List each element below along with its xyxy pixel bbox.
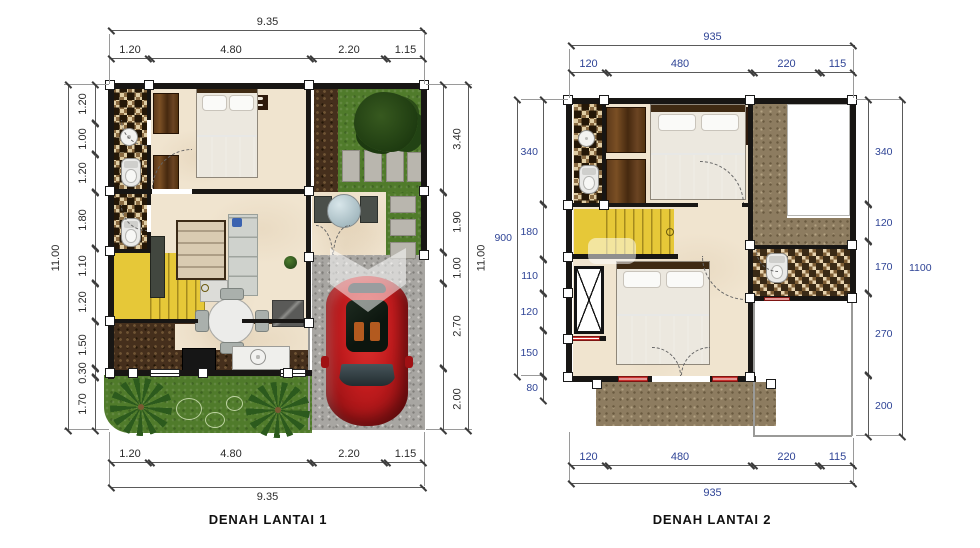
dim-label: 1.90 [451,211,463,232]
dim-label: 120 [520,306,538,318]
dim-segment: 270 [868,293,869,375]
dim-label: 120 [579,58,597,70]
stepping-stone [407,152,422,182]
dim-segment: 150 [543,330,544,376]
dim-label: 120 [579,451,597,463]
extension-line [856,435,901,436]
wall-pillar [563,252,573,262]
stair-pivot [201,284,209,292]
plan-title: DENAH LANTAI 2 [653,512,772,527]
pillow [229,95,254,111]
floorplan-sheet: 9.35 1.20 4.80 2.20 1.15 1.20 4.80 2.20 … [0,0,980,548]
porch-chair [360,196,378,223]
dim-segment: 2.70 [443,283,444,368]
dim-segment: 120 [570,72,607,73]
dim-label: 1.20 [119,448,140,460]
dim-segment: 1.00 [443,252,444,283]
wall [108,83,427,89]
dim-label: 480 [671,451,689,463]
dim-label: 1.10 [77,255,89,276]
wall [850,98,856,302]
wall [748,245,856,249]
dim-segment: 115 [820,465,855,466]
dim-label: 2.20 [338,44,359,56]
wall-pillar [592,379,602,389]
wall [602,203,698,207]
window [764,297,790,301]
wall-pillar [304,318,314,328]
dim-label: 340 [520,146,538,158]
window [618,376,648,382]
dim-segment: 3.40 [443,85,444,192]
dim-label: 2.70 [451,315,463,336]
dim-segment: 1.20 [95,283,96,321]
dim-label: 1.50 [77,334,89,355]
wall-pillar [745,95,755,105]
wall-pillar [563,288,573,298]
wall-pillar [128,368,138,378]
dim-label: 270 [875,328,893,340]
bush [205,412,225,428]
dim-label: 2.20 [338,448,359,460]
watermark [588,238,636,264]
stepping-stone [342,150,360,182]
dim-label: 220 [777,451,795,463]
door-opening [152,189,192,194]
dim-segment: 1.70 [95,377,96,430]
wardrobe [606,159,646,205]
balcony-deck [596,382,776,426]
dim-label: 180 [520,226,538,238]
dim-segment: 1.20 [110,58,150,59]
outline-line [753,435,852,437]
dim-label: 220 [777,58,795,70]
wall [242,319,310,323]
wall-pillar [563,372,573,382]
stair-landing [112,253,150,322]
dim-label: 110 [521,270,538,282]
dim-label: 11.00 [50,244,62,271]
wardrobe [153,93,179,134]
dim-segment: 220 [753,72,820,73]
dim-total-right: 1100 [902,100,903,436]
wall [110,189,150,194]
dim-segment: 180 [543,204,544,259]
stepping-stone [364,150,382,182]
dim-segment: 120 [543,293,544,330]
tv-cabinet [150,236,165,298]
dim-total-bottom: 9.35 [110,487,425,488]
wall [566,98,856,104]
dim-label: 11.00 [476,244,488,271]
bush [226,396,243,411]
dim-label: 200 [875,400,893,412]
shade-tree [354,92,418,152]
planting-bed [314,88,338,192]
wall-pillar [563,200,573,210]
extension-line [569,432,570,482]
dim-label: 1.20 [77,93,89,114]
wall-pillar [745,372,755,382]
extension-line [426,84,472,85]
wall [306,83,311,324]
dim-label: 1.20 [77,291,89,312]
wall-pillar [745,293,755,303]
dim-segment-below: 80 [543,376,544,400]
wall [110,249,150,253]
dim-label: 340 [875,146,893,158]
toilet [121,158,141,187]
dim-label: 935 [703,487,721,499]
chair [220,288,244,300]
dim-total-left: 900 [517,100,518,376]
wall-pillar [105,316,115,326]
wardrobe [606,107,646,153]
wall-pillar [419,186,429,196]
wall-pillar [599,95,609,105]
sink [578,130,595,147]
dim-segment: 200 [868,375,869,436]
extension-line [64,84,109,85]
dim-label: 150 [520,347,538,359]
dim-segment: 1.20 [95,154,96,192]
car-mirror [405,356,413,368]
wall-pillar [847,95,857,105]
extension-line [424,432,425,486]
dim-label: 1.00 [451,257,463,278]
wall-pillar [599,200,609,210]
wall [748,98,753,302]
door-opening [652,376,710,382]
dim-segment: 1.90 [443,192,444,252]
extension-line [521,375,543,376]
wall [742,203,753,207]
window [572,336,600,341]
wall [748,302,753,382]
outline-line [753,302,755,436]
wall-pillar [144,80,154,90]
dim-total-right: 11.00 [468,85,469,430]
dim-segment: 4.80 [150,462,312,463]
dim-label: 1100 [909,262,932,274]
dim-total-left: 11.00 [68,85,69,430]
wall-pillar [563,334,573,344]
dim-label: 935 [703,31,721,43]
dim-label: 480 [671,58,689,70]
stair-pivot [666,228,674,236]
dim-segment: 4.80 [150,58,312,59]
dim-segment: 2.20 [312,462,386,463]
door-opening [147,205,151,232]
wall-pillar [105,368,115,378]
dim-total-bottom: 935 [570,483,855,484]
dim-label: 9.35 [257,16,278,28]
dim-label: 170 [875,261,893,273]
wall-pillar [105,246,115,256]
pillow [701,114,739,131]
rug [176,220,226,280]
dim-label: 115 [829,451,847,463]
bed [196,85,258,178]
sofa-cushion [232,218,242,227]
dim-segment: 115 [820,72,855,73]
dim-segment: 120 [570,465,607,466]
dim-label: 4.80 [220,44,241,56]
wall-pillar [105,80,115,90]
wall-pillar [105,186,115,196]
palm-tree [110,378,172,436]
potted-plant [284,256,297,269]
dim-segment: 1.15 [386,58,425,59]
dim-label: 1.00 [77,128,89,149]
dim-segment: 170 [868,241,869,293]
porch-table [327,194,361,228]
extension-line [64,429,109,430]
dim-segment: 1.10 [95,248,96,283]
dim-label: 1.80 [77,209,89,230]
dim-label: 3.40 [451,128,463,149]
dim-label: 1.15 [395,44,416,56]
window [150,369,180,377]
pillow [666,271,704,288]
bush [176,398,202,420]
dim-segment: 1.50 [95,321,96,368]
dim-label: 2.00 [451,388,463,409]
extension-line [569,49,570,98]
dim-total-top: 9.35 [110,30,425,31]
pillow [658,114,696,131]
dim-segment: 220 [753,465,820,466]
wall-pillar [847,293,857,303]
sink [250,349,266,365]
dim-segment: 110 [543,259,544,293]
dim-segment: 340 [543,100,544,204]
dim-segment: 2.20 [312,58,386,59]
wall [110,319,198,323]
blanket [197,135,257,177]
car-windshield [338,364,396,386]
stepping-stone [390,196,416,213]
window [712,376,738,382]
dim-label: 1.20 [119,44,140,56]
dim-label: 120 [875,217,893,229]
dim-segment: 1.15 [386,462,425,463]
door-opening [147,120,151,145]
extension-line [856,99,901,100]
roof-deck-strip [753,218,853,245]
wall-pillar [745,240,755,250]
dim-segment: 480 [607,465,753,466]
wall-pillar [304,252,314,262]
dim-segment: 1.00 [95,123,96,154]
stepping-stone [386,150,404,182]
dim-label: 1.15 [395,448,416,460]
plan-title: DENAH LANTAI 1 [209,512,328,527]
toilet [579,165,599,194]
dim-label: 1.20 [77,162,89,183]
dim-segment: 2.00 [443,368,444,430]
wall-pillar [198,368,208,378]
wall [421,83,427,257]
dim-total-top: 935 [570,45,855,46]
wall-pillar [766,379,776,389]
dim-label: 9.35 [257,491,278,503]
wall [108,83,114,379]
dim-label: 0.30 [77,362,89,383]
pillow [202,95,227,111]
wall-pillar [847,240,857,250]
wall-pillar [304,186,314,196]
extension-line [853,438,854,482]
wall-pillar [419,250,429,260]
outline-line [851,302,853,436]
wall-pillar [563,95,573,105]
car-mirror [321,356,329,368]
dim-segment: 1.80 [95,192,96,248]
dim-label: 115 [829,58,847,70]
dim-label: 80 [526,382,538,394]
wall [602,103,606,205]
roof-void [787,104,850,216]
wall-pillar [304,80,314,90]
headboard [651,105,745,112]
wall-pillar [283,368,293,378]
stepping-stone [390,219,416,236]
shaft-void [574,266,604,334]
dim-segment: 1.20 [95,85,96,123]
dim-segment: 120 [868,204,869,241]
pillow [623,271,661,288]
palm-tree [246,382,310,438]
dim-label: 1.70 [77,393,89,414]
dim-segment: 1.20 [110,462,150,463]
dim-segment: 340 [868,100,869,204]
dim-label: 900 [494,232,512,244]
dim-label: 4.80 [220,448,241,460]
dim-segment: 480 [607,72,753,73]
